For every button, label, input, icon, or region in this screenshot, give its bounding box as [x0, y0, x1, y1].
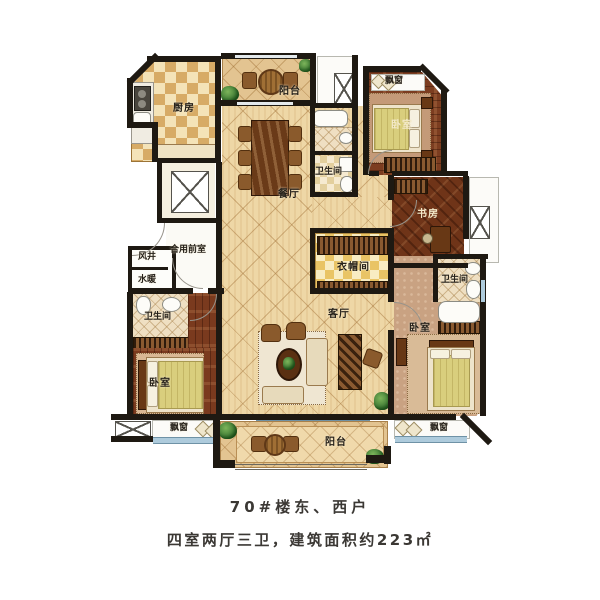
wall — [111, 436, 153, 442]
closet-rack — [317, 236, 388, 255]
armchair-icon — [261, 324, 281, 342]
wall — [433, 254, 438, 302]
room-label-bay-bottom-left: 飘窗 — [170, 424, 188, 433]
coffee-table-icon — [276, 348, 302, 381]
bathtub-icon — [438, 301, 480, 323]
room-label-bath-left: 卫生间 — [144, 313, 171, 322]
nightstand-icon — [421, 97, 433, 109]
wall — [392, 171, 468, 176]
tv-bench-icon — [338, 334, 362, 390]
chair-icon — [288, 126, 302, 142]
wall — [157, 158, 221, 163]
chair-icon — [242, 72, 257, 89]
elevator-icon — [171, 171, 209, 213]
caption: 70#楼东、西户 四室两厅三卫，建筑面积约223㎡ — [0, 496, 600, 550]
room-label-bedroom-top-right: 卧室 — [391, 121, 413, 131]
window-glass — [395, 436, 467, 443]
wall — [157, 218, 222, 223]
corridor-floor — [312, 197, 392, 230]
wall — [157, 158, 162, 222]
pillow — [430, 349, 450, 359]
wall — [216, 162, 222, 418]
wall — [310, 192, 357, 197]
chair-icon — [238, 150, 252, 166]
wall — [152, 122, 158, 162]
sofa-icon — [306, 338, 328, 386]
wall — [388, 330, 394, 418]
wall — [131, 288, 193, 294]
room-label-vestibule: 合用前室 — [170, 246, 206, 255]
chair-icon — [288, 150, 302, 166]
wall — [111, 414, 221, 420]
wall — [310, 228, 315, 294]
wall — [352, 99, 358, 197]
toilet-icon — [466, 280, 481, 299]
room-label-closet: 衣帽间 — [337, 263, 370, 273]
balcony-rail — [235, 464, 367, 470]
wall — [127, 78, 133, 126]
room-label-living: 客厅 — [328, 310, 350, 320]
study-closet-strip — [394, 179, 428, 194]
window-symbol — [481, 280, 485, 302]
window-glass — [153, 437, 217, 444]
room-label-plumbing: 水暖 — [138, 276, 156, 285]
plant-icon — [219, 422, 237, 439]
pillow — [409, 129, 420, 148]
window-symbol — [470, 206, 490, 239]
room-label-wind-shaft: 风井 — [138, 253, 156, 262]
room-label-bay-bottom-right: 飘窗 — [430, 424, 448, 433]
wall — [215, 56, 221, 162]
wall — [310, 103, 315, 197]
wall — [213, 418, 220, 466]
wall — [127, 292, 133, 418]
bed-right-blanket — [433, 355, 470, 407]
sink-icon — [339, 132, 353, 144]
room-label-balcony-top: 阳台 — [279, 87, 301, 97]
stove-icon — [134, 86, 151, 111]
wall — [463, 176, 469, 239]
room-label-bath-right: 卫生间 — [441, 276, 468, 285]
wall — [310, 53, 316, 106]
dining-table — [251, 120, 289, 196]
wall — [392, 414, 456, 420]
caption-line-1: 70#楼东、西户 — [0, 496, 600, 517]
chair-icon — [288, 174, 302, 190]
floor-plan-page: 厨房 阳台 餐厅 卫生间 飘窗 卧室 书房 衣帽间 合用前室 风井 水暖 卫生间… — [0, 0, 600, 600]
dresser-icon — [396, 338, 407, 366]
wall — [221, 414, 394, 420]
room-label-bath-center: 卫生间 — [315, 168, 342, 177]
chair-icon — [238, 174, 252, 190]
wall — [310, 228, 392, 233]
wall — [388, 228, 394, 302]
caption-line-2: 四室两厅三卫，建筑面积约223㎡ — [0, 529, 600, 550]
wall — [128, 267, 168, 270]
wall — [388, 175, 394, 200]
bathtub-icon — [313, 110, 348, 127]
room-label-bedroom-left: 卧室 — [149, 379, 171, 389]
room-label-study: 书房 — [417, 210, 439, 220]
window-symbol — [237, 102, 293, 105]
wall — [363, 66, 369, 175]
wall — [213, 460, 235, 468]
room-label-dining: 餐厅 — [278, 190, 300, 200]
desk-chair-icon — [422, 233, 433, 244]
wall — [441, 90, 447, 175]
window-symbol — [334, 73, 354, 105]
wall — [389, 263, 468, 268]
window-symbol — [235, 55, 297, 58]
wall — [352, 55, 358, 102]
wall — [369, 66, 421, 72]
wall — [311, 151, 356, 155]
wall — [310, 288, 393, 294]
room-label-kitchen: 厨房 — [173, 104, 195, 114]
pillow — [451, 349, 471, 359]
room-label-bedroom-right: 卧室 — [409, 324, 431, 334]
room-label-bay-top-right: 飘窗 — [385, 77, 403, 86]
room-label-balcony-bottom: 阳台 — [325, 438, 347, 448]
desk-icon — [430, 226, 451, 253]
table-icon — [264, 434, 286, 456]
wall — [480, 254, 486, 416]
sofa-icon — [262, 386, 304, 404]
sink-icon — [162, 297, 181, 312]
chair-icon — [238, 126, 252, 142]
armchair-icon — [286, 322, 306, 340]
wall — [310, 103, 357, 108]
wall — [384, 446, 391, 464]
